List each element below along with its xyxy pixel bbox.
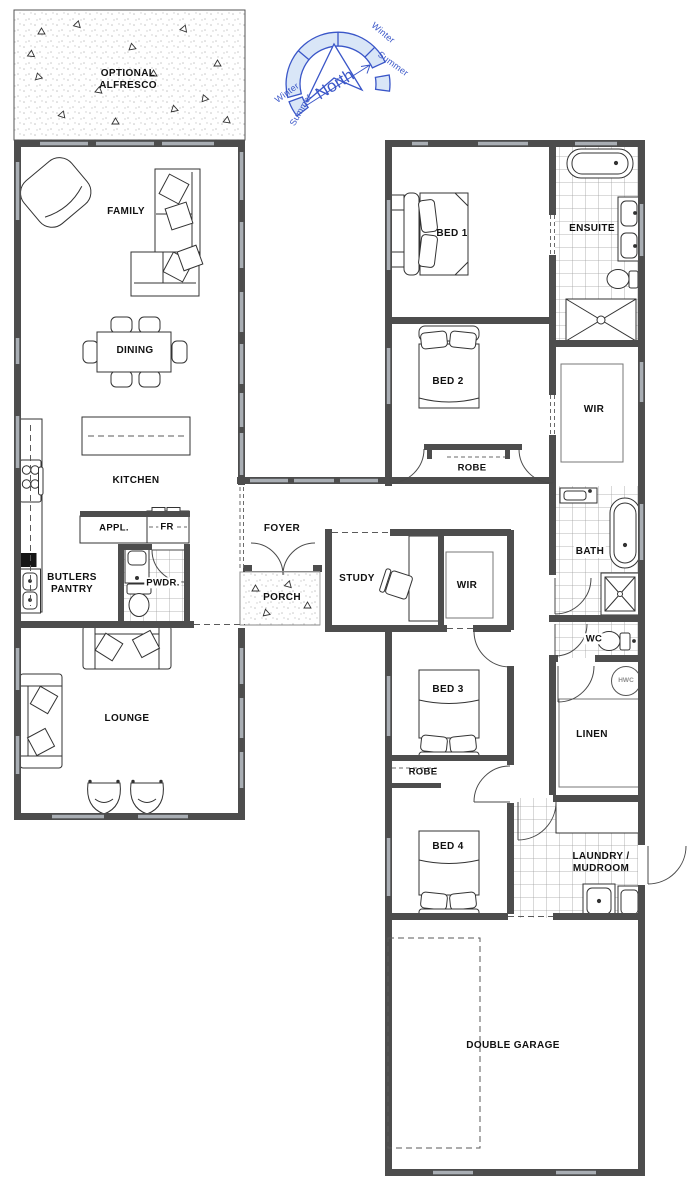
label-butlers-pantry: BUTLERS PANTRY	[41, 572, 103, 596]
foyer-door-right	[283, 543, 315, 575]
ensuite-vanity	[618, 197, 640, 261]
label-robe-bed3: ROBE	[409, 766, 438, 777]
lounge-sofa-left	[20, 674, 62, 768]
floor-plan: North OPTIONAL ALFRESCO FAMILY DINING KI…	[0, 0, 690, 1189]
label-wir-middle: WIR	[457, 580, 478, 592]
label-foyer: FOYER	[264, 523, 300, 535]
family-armchair	[14, 151, 97, 234]
study-desk	[409, 536, 440, 621]
label-appliances: APPL.	[99, 522, 129, 533]
linen-shelf	[559, 699, 639, 787]
bath-bathtub	[610, 498, 640, 568]
bed2-furniture	[419, 326, 479, 408]
family-sofa	[131, 169, 203, 296]
laundry-bench	[556, 800, 639, 833]
label-bed2: BED 2	[432, 376, 463, 388]
label-ensuite: ENSUITE	[569, 223, 615, 235]
foyer-door-left	[251, 543, 283, 575]
label-robe-bed2: ROBE	[458, 462, 487, 473]
bed4-door	[474, 766, 510, 802]
label-bed4: BED 4	[432, 841, 463, 853]
lounge-chair-left	[88, 780, 121, 814]
lounge-chair-right	[131, 780, 164, 814]
label-porch: PORCH	[263, 592, 301, 604]
wir-slider	[551, 395, 555, 435]
label-study: STUDY	[339, 573, 375, 585]
laundry-exterior-door	[648, 846, 686, 884]
ensuite-toilet	[607, 270, 638, 289]
label-bed1: BED 1	[436, 228, 467, 240]
lounge-sofa-top	[83, 626, 171, 669]
laundry-sink	[583, 884, 615, 918]
label-fridge: FR	[158, 521, 175, 532]
bath-shower	[601, 573, 639, 615]
label-dining: DINING	[116, 345, 153, 357]
label-wc: WC	[584, 633, 605, 644]
ensuite-slider	[551, 215, 555, 255]
label-wir-main: WIR	[584, 404, 605, 416]
label-hwc: HWC	[618, 677, 634, 685]
bed3-door	[474, 631, 510, 667]
label-powder: PWDR.	[144, 577, 181, 588]
ensuite-bathtub	[567, 149, 633, 178]
bath-vanity	[560, 488, 597, 503]
label-garage: DOUBLE GARAGE	[466, 1040, 559, 1052]
label-lounge: LOUNGE	[105, 713, 150, 725]
label-bed3: BED 3	[432, 684, 463, 696]
ensuite-shower	[566, 299, 636, 341]
label-laundry: LAUNDRY / MUDROOM	[555, 851, 647, 875]
powder-toilet	[127, 584, 151, 617]
label-family: FAMILY	[107, 206, 145, 218]
label-linen: LINEN	[576, 729, 608, 741]
label-bath: BATH	[574, 546, 606, 558]
study-chair	[379, 568, 413, 599]
linen-door	[558, 666, 594, 702]
label-kitchen: KITCHEN	[113, 475, 160, 487]
label-alfresco: OPTIONAL ALFRESCO	[86, 68, 170, 92]
floor-plan-drawing: North	[0, 0, 690, 1189]
